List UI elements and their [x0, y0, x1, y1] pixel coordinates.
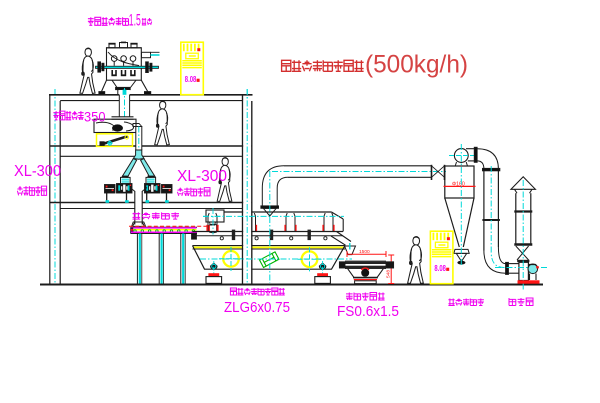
svg-text:Φ160: Φ160	[452, 182, 465, 188]
svg-text:1.5: 1.5	[129, 11, 141, 30]
svg-text:8.08: 8.08	[185, 74, 197, 84]
svg-text:1500: 1500	[359, 249, 370, 255]
svg-text:548: 548	[386, 270, 392, 278]
svg-text:FS0.6x1.5: FS0.6x1.5	[337, 303, 399, 320]
svg-text:8.08: 8.08	[434, 263, 446, 273]
svg-text:XL-300: XL-300	[177, 168, 227, 185]
svg-text:ZLG6x0.75: ZLG6x0.75	[224, 300, 290, 316]
svg-text:350: 350	[84, 110, 106, 125]
svg-text:(500kg/h): (500kg/h)	[365, 51, 468, 79]
svg-text:XL-300: XL-300	[14, 163, 61, 180]
